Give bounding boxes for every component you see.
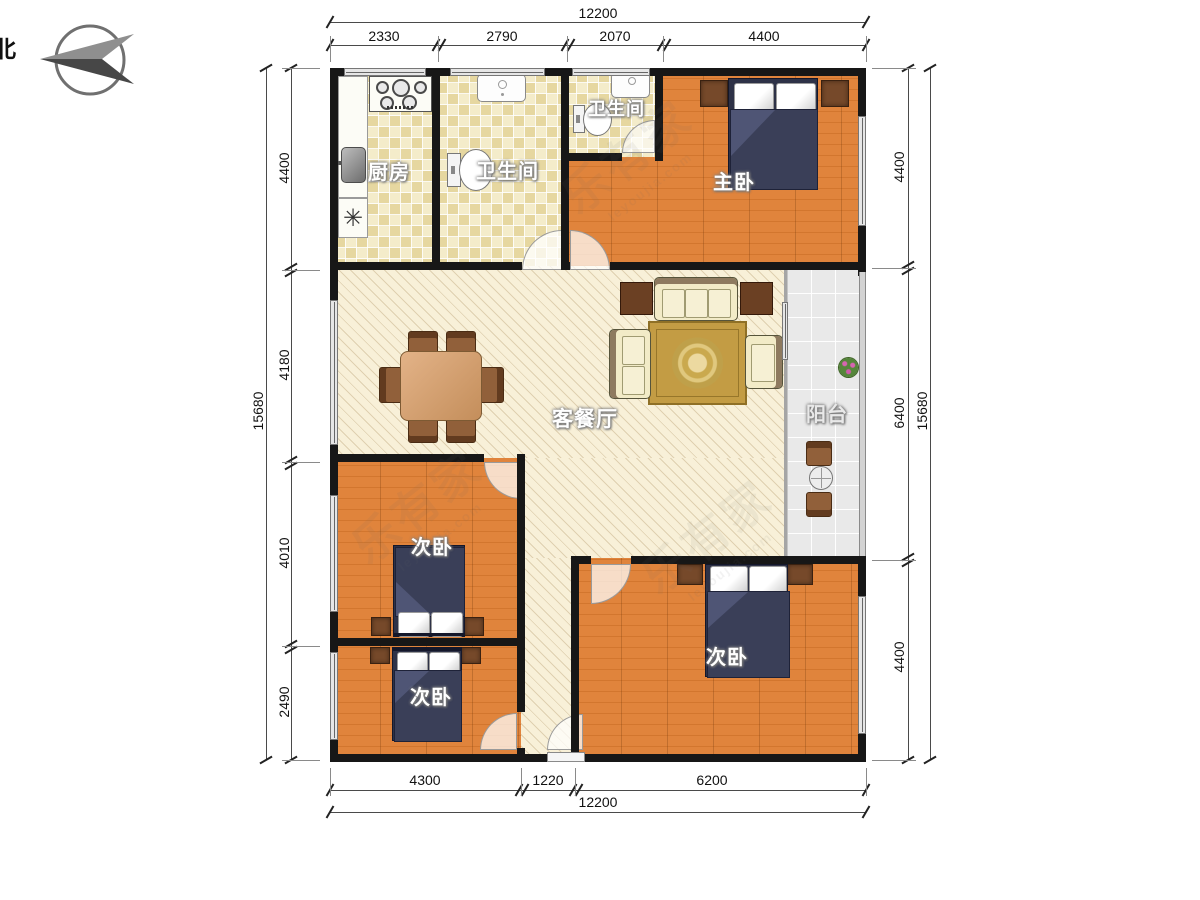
balcony-chair [806, 441, 832, 466]
kitchen-stove [369, 76, 432, 112]
duvet-fold [396, 582, 432, 616]
dim-guide [282, 462, 320, 463]
dim-guide [663, 36, 664, 62]
window-bathroom-main [450, 68, 545, 76]
dim-label: 4180 [276, 340, 292, 390]
dim-line [330, 812, 866, 813]
loveseat [609, 329, 651, 399]
drain-dot [501, 93, 504, 96]
window-master [858, 116, 866, 226]
dining-chair [479, 367, 504, 403]
window-bedroom-left-lower [330, 652, 338, 740]
dim-guide [330, 36, 331, 62]
dim-guide [866, 36, 867, 62]
floor-plan-canvas: 北 ✳ [0, 0, 1200, 900]
dim-line [330, 45, 866, 46]
room-label-bedroom-right: 次卧 [706, 641, 748, 670]
duvet-fold [731, 110, 775, 156]
headboard [394, 633, 464, 636]
faucet-icon [498, 80, 507, 89]
floor-drain-icon: ✳ [343, 205, 363, 232]
wall [330, 754, 547, 762]
nightstand [821, 80, 849, 107]
dim-guide [872, 560, 916, 561]
window-living [330, 300, 338, 445]
dim-guide [282, 68, 320, 69]
window-bedroom-left-upper [330, 495, 338, 612]
window-kitchen [344, 68, 426, 76]
nightstand [370, 647, 390, 664]
window-bedroom-right [858, 596, 866, 734]
dim-guide [575, 768, 576, 796]
sofa-cushion [751, 344, 775, 382]
entry-door-leaf [547, 752, 585, 762]
floor-living-dining [521, 458, 787, 558]
duvet-fold [708, 592, 748, 628]
dim-line [908, 68, 909, 760]
nightstand [787, 564, 813, 585]
nightstand [464, 617, 484, 636]
wall [610, 262, 866, 270]
dim-guide [872, 760, 916, 761]
faucet-icon [628, 77, 636, 85]
dim-line [330, 22, 866, 23]
room-label-balcony: 阳台 [806, 398, 848, 427]
dim-guide [866, 768, 867, 796]
side-table [740, 282, 773, 315]
dim-label: 4400 [748, 28, 779, 44]
dim-guide [567, 36, 568, 62]
dim-label: 2070 [599, 28, 630, 44]
wall [561, 76, 569, 270]
dim-label: 4010 [276, 528, 292, 578]
wall [517, 454, 525, 712]
wall [585, 754, 866, 762]
balcony-door [782, 302, 788, 360]
sofa-cushion [685, 289, 708, 318]
dim-label: 4400 [891, 632, 907, 682]
dim-guide [521, 768, 522, 796]
wall [562, 262, 570, 270]
stove-burner-icon [376, 81, 389, 94]
washer-box: ✳ [338, 198, 368, 238]
sofa-cushion [662, 289, 685, 318]
dim-guide [872, 68, 916, 69]
rug [648, 321, 747, 405]
dim-line [930, 68, 931, 760]
dim-label: 1220 [532, 772, 563, 788]
stove-burner-icon [414, 81, 427, 94]
dim-label: 4400 [276, 143, 292, 193]
room-label-master-bedroom: 主卧 [713, 166, 755, 195]
kitchen-sink [341, 147, 366, 183]
balcony-chair [806, 492, 832, 517]
dim-label: 4300 [409, 772, 440, 788]
nightstand [371, 617, 391, 636]
dim-label: 2490 [276, 677, 292, 727]
dim-guide [282, 646, 320, 647]
room-label-bathroom-main: 卫生间 [476, 155, 539, 184]
wall [517, 748, 525, 756]
dim-label: 2330 [368, 28, 399, 44]
dim-label-left-total: 15680 [250, 386, 266, 436]
north-label: 北 [0, 30, 16, 64]
room-label-bedroom-left-lower: 次卧 [410, 681, 452, 710]
headboard [393, 648, 461, 651]
sofa-three-seat [654, 277, 738, 321]
dim-label-bottom-total: 12200 [579, 794, 618, 810]
wall [571, 564, 579, 754]
nightstand [677, 564, 703, 585]
plant-icon [839, 358, 858, 377]
nightstand [700, 80, 728, 107]
dim-guide [438, 36, 439, 62]
dim-label-top-total: 12200 [579, 5, 618, 21]
wall [338, 262, 522, 270]
wall [432, 76, 440, 270]
stove-grill [387, 106, 415, 109]
nightstand [461, 647, 481, 664]
compass-icon [18, 14, 158, 106]
room-label-bathroom-small: 卫生间 [588, 95, 645, 121]
armchair [745, 335, 783, 389]
wall [569, 153, 622, 161]
balcony-partition [784, 270, 787, 302]
wall [631, 556, 866, 564]
bathroom-sink [477, 74, 526, 102]
balcony-railing [859, 272, 866, 556]
dim-guide [282, 270, 320, 271]
wall [571, 556, 591, 564]
sofa-cushion [622, 366, 645, 395]
sofa-cushion [622, 336, 645, 365]
dim-label-right-total: 15680 [914, 386, 930, 436]
dim-guide [330, 768, 331, 796]
window-bathroom-small [572, 68, 650, 76]
rug-inner [656, 329, 739, 397]
dining-table [400, 351, 482, 421]
wall [338, 454, 484, 462]
dim-line [266, 68, 267, 760]
room-label-living-dining: 客餐厅 [552, 403, 618, 433]
wall [338, 638, 525, 646]
dim-guide [282, 760, 320, 761]
wall [655, 76, 663, 161]
dim-label: 4400 [891, 142, 907, 192]
room-label-kitchen: 厨房 [368, 156, 410, 185]
dim-label: 6400 [891, 388, 907, 438]
dim-label: 6200 [696, 772, 727, 788]
sofa-cushion [708, 289, 731, 318]
balcony-table [809, 466, 833, 490]
balcony-partition [784, 360, 787, 556]
dim-label: 2790 [486, 28, 517, 44]
side-table [620, 282, 653, 315]
dim-line [330, 790, 866, 791]
dim-guide [872, 268, 916, 269]
room-label-bedroom-left-upper: 次卧 [411, 531, 453, 560]
